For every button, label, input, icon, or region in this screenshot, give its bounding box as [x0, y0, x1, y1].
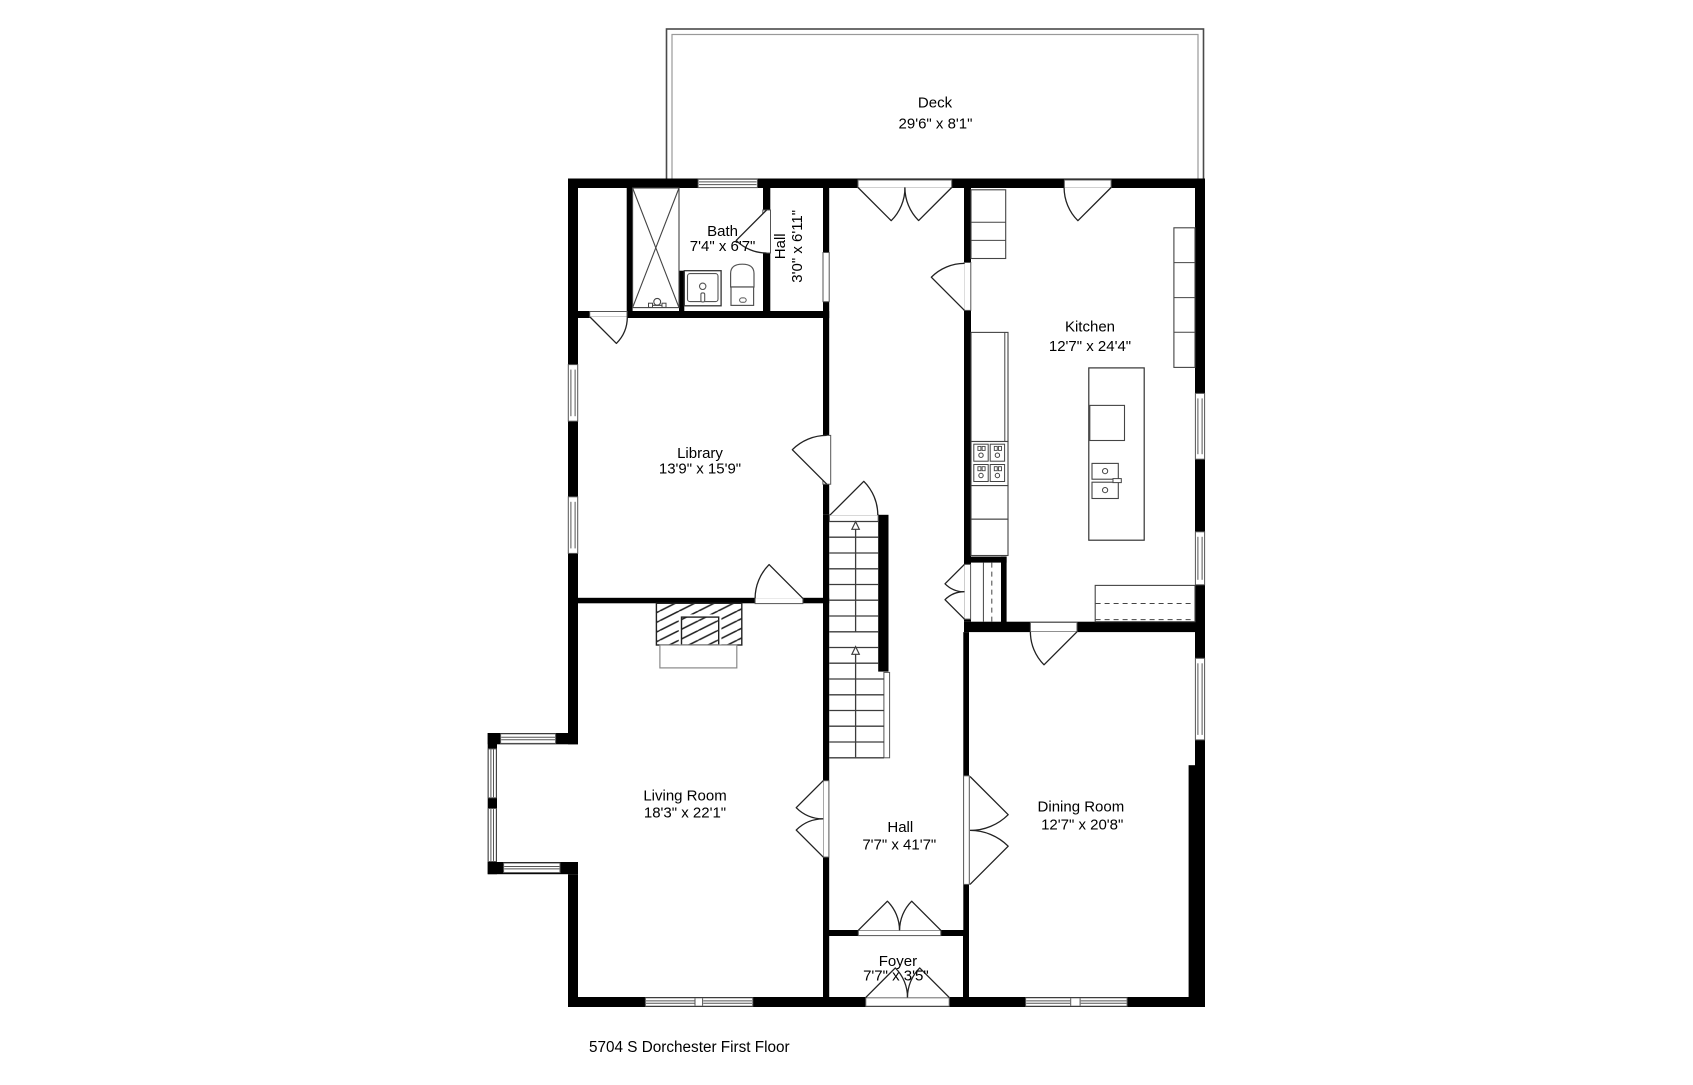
svg-text:5704 S Dorchester First Floor: 5704 S Dorchester First Floor: [589, 1039, 790, 1056]
svg-text:Dining Room: Dining Room: [1038, 799, 1125, 816]
svg-text:13'9" x 15'9": 13'9" x 15'9": [659, 461, 741, 478]
svg-text:29'6" x 8'1": 29'6" x 8'1": [899, 116, 973, 133]
svg-text:7'7" x 41'7": 7'7" x 41'7": [862, 837, 936, 854]
svg-text:3'0" x 6'11": 3'0" x 6'11": [789, 210, 806, 283]
svg-text:7'4" x 6'7": 7'4" x 6'7": [690, 238, 756, 255]
svg-text:Living Room: Living Room: [643, 788, 726, 805]
svg-text:Hall: Hall: [772, 233, 789, 259]
svg-text:Hall: Hall: [887, 819, 913, 836]
svg-text:18'3" x 22'1": 18'3" x 22'1": [644, 804, 726, 821]
svg-text:Library: Library: [677, 445, 723, 462]
svg-text:Deck: Deck: [918, 95, 953, 112]
svg-text:Kitchen: Kitchen: [1065, 319, 1115, 336]
svg-text:7'7" x 3'5": 7'7" x 3'5": [863, 967, 929, 984]
svg-text:12'7" x 20'8": 12'7" x 20'8": [1041, 816, 1123, 833]
svg-text:12'7" x 24'4": 12'7" x 24'4": [1049, 338, 1131, 355]
